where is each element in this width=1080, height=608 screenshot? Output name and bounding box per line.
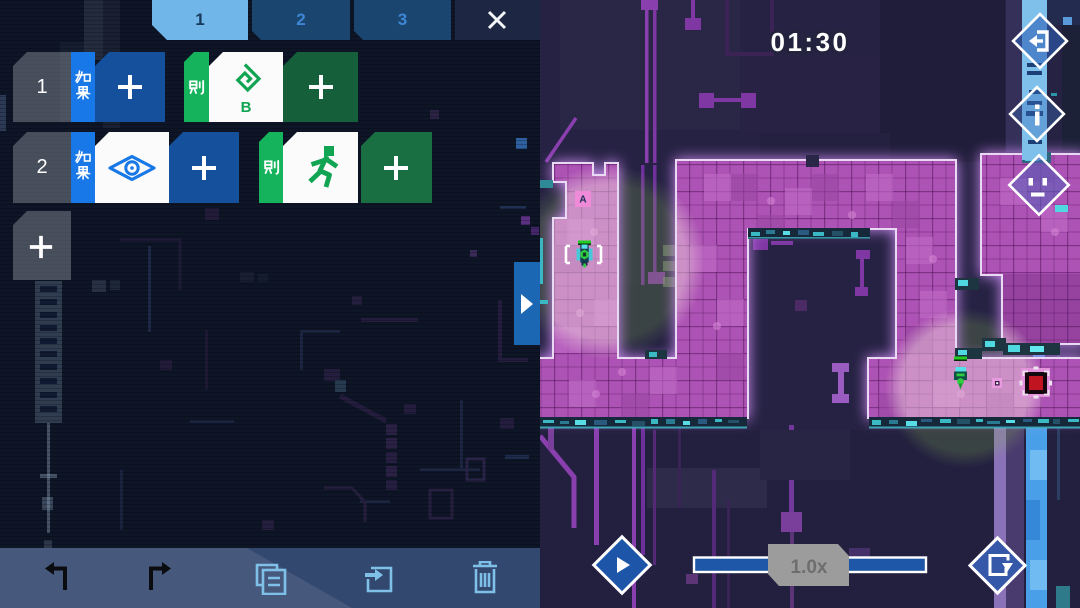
svg-text:01:30: 01:30: [771, 27, 850, 57]
svg-text:A: A: [579, 195, 586, 206]
svg-text:1.0x: 1.0x: [791, 557, 828, 578]
